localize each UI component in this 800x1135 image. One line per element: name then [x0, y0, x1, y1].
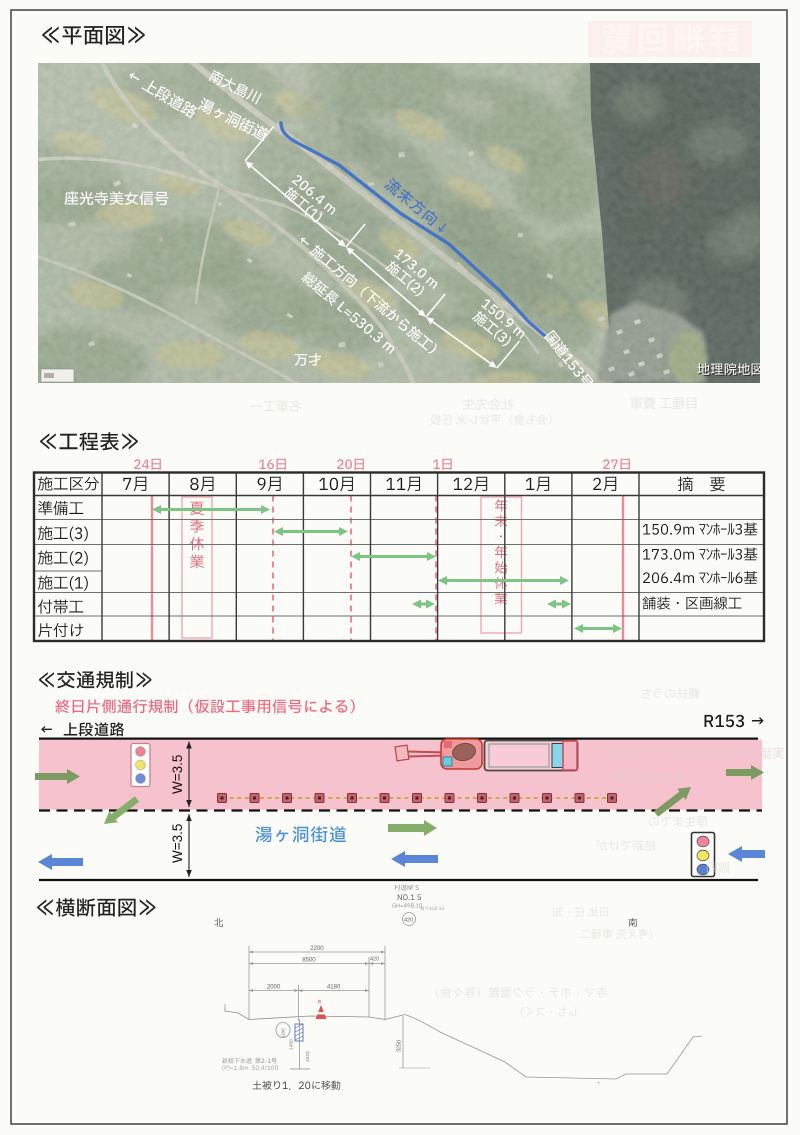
svg-text:1620: 1620	[305, 1051, 311, 1062]
svg-text:W=3.5: W=3.5	[170, 824, 185, 863]
svg-text:420: 420	[370, 957, 379, 963]
svg-text:420: 420	[404, 918, 413, 924]
svg-text:+: +	[597, 1081, 601, 1087]
svg-text:1100: 1100	[281, 1028, 286, 1038]
svg-text:W=3.5: W=3.5	[170, 755, 185, 794]
svg-text:1450: 1450	[289, 1039, 295, 1050]
svg-text:4180: 4180	[327, 985, 341, 991]
svg-text:2200: 2200	[310, 946, 324, 952]
svg-text:2000: 2000	[267, 985, 281, 991]
svg-text:3250: 3250	[397, 1040, 403, 1052]
svg-text:8500: 8500	[302, 958, 316, 964]
svg-text:B: B	[318, 999, 321, 1004]
